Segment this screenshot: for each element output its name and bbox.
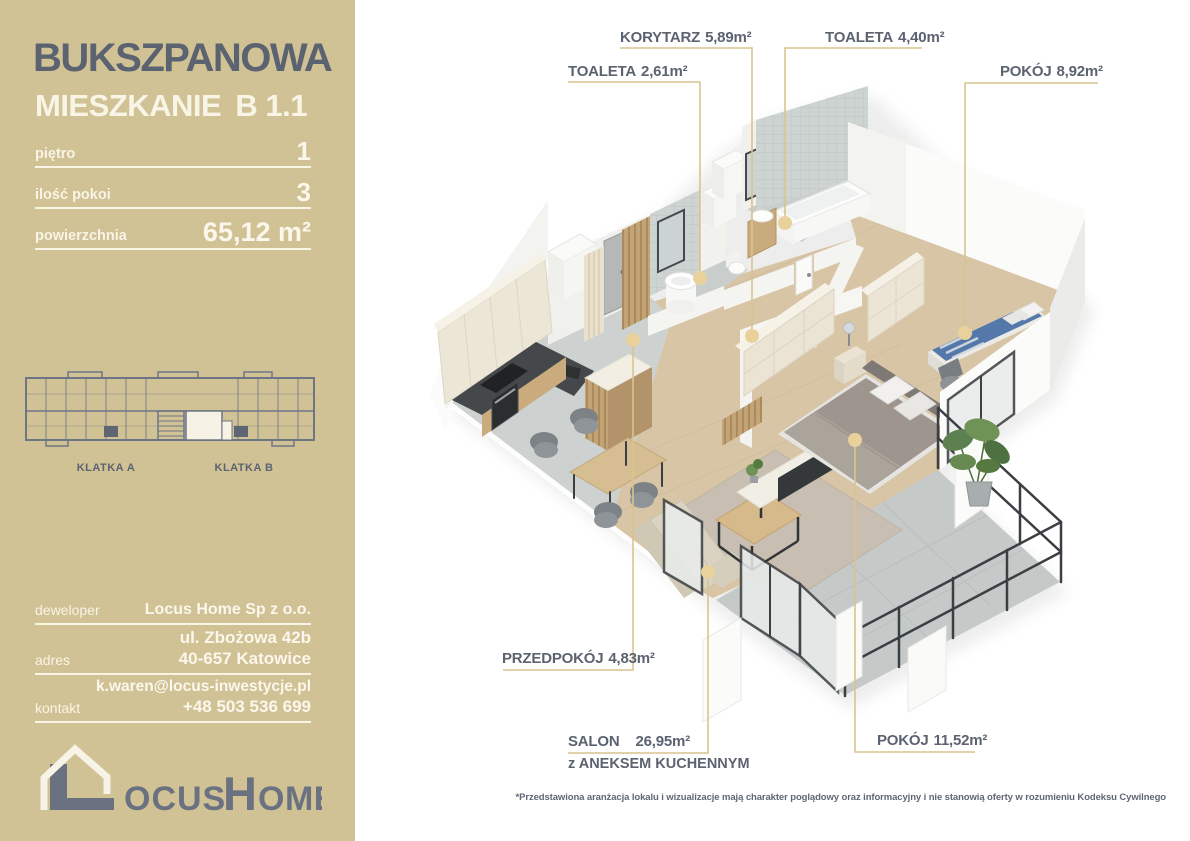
unit-number: B 1.1	[235, 88, 307, 124]
developer-row: deweloper Locus Home Sp z o.o.	[35, 598, 311, 625]
label-salon-sub: z ANEKSEM KUCHENNYM	[568, 756, 750, 772]
address-line1: ul. Zbożowa 42b	[179, 628, 311, 648]
brochure-page: BUKSZPANOWA MIESZKANIE B 1.1 piętro 1 il…	[0, 0, 1190, 841]
spec-value-area: 65,12 m²	[203, 219, 311, 248]
spec-row-floor: piętro 1	[35, 127, 311, 168]
contact-row: kontakt k.waren@locus-inwestycje.pl +48 …	[35, 678, 311, 723]
dark-unit-a	[104, 426, 118, 437]
spec-value-rooms: 3	[297, 179, 311, 207]
label-salon: SALON26,95m²	[568, 733, 690, 750]
project-title: BUKSZPANOWA	[33, 36, 331, 81]
company-logo: OCUS H OME	[30, 736, 322, 829]
spec-label-rooms: ilość pokoi	[35, 187, 111, 207]
spec-label-area: powierzchnia	[35, 228, 127, 248]
building-plan-svg	[20, 366, 320, 462]
spec-value-floor: 1	[297, 138, 311, 166]
label-przedpokoj: PRZEDPOKÓJ4,83m²	[502, 650, 655, 667]
label-korytarz: KORYTARZ5,89m²	[620, 29, 751, 46]
contact-label: kontakt	[35, 700, 80, 717]
logo-text-h: H	[223, 767, 257, 820]
logo-text-ocus: OCUS	[124, 780, 226, 818]
contact-email: k.waren@locus-inwestycje.pl	[96, 678, 311, 697]
unit-title: MIESZKANIE B 1.1	[35, 88, 307, 124]
sidebar: BUKSZPANOWA MIESZKANIE B 1.1 piętro 1 il…	[0, 0, 355, 841]
developer-label: deweloper	[35, 602, 100, 619]
spec-row-area: powierzchnia 65,12 m²	[35, 209, 311, 250]
label-toaleta-261: TOALETA2,61m²	[568, 63, 687, 80]
label-pokoj-1152: POKÓJ11,52m²	[877, 732, 987, 749]
building-plan-diagram	[20, 366, 320, 467]
contact-phone: +48 503 536 699	[96, 697, 311, 717]
unit-label: MIESZKANIE	[35, 88, 221, 124]
bath1-slat-panel	[622, 216, 650, 330]
contact-block: deweloper Locus Home Sp z o.o. adres ul.…	[35, 598, 311, 726]
bath1-mirror	[658, 210, 684, 272]
address-label: adres	[35, 652, 70, 669]
label-toaleta-440: TOALETA4,40m²	[825, 29, 944, 46]
spec-table: piętro 1 ilość pokoi 3 powierzchnia 65,1…	[35, 127, 311, 250]
contact-value: k.waren@locus-inwestycje.pl +48 503 536 …	[96, 678, 311, 717]
dark-unit-b	[234, 426, 248, 437]
label-pokoj-892: POKÓJ8,92m²	[1000, 63, 1103, 80]
address-row: adres ul. Zbożowa 42b 40-657 Katowice	[35, 628, 311, 675]
address-line2: 40-657 Katowice	[179, 649, 311, 669]
spec-label-floor: piętro	[35, 146, 75, 166]
highlighted-unit	[186, 411, 222, 440]
spec-row-rooms: ilość pokoi 3	[35, 168, 311, 209]
developer-value: Locus Home Sp z o.o.	[145, 600, 311, 619]
disclaimer-footnote: *Przedstawiona aranżacja lokalu i wizual…	[516, 792, 1166, 803]
logo-text-ome: OME	[258, 780, 322, 818]
address-value: ul. Zbożowa 42b 40-657 Katowice	[179, 628, 311, 669]
klatka-b-label: KLATKA B	[196, 462, 292, 474]
plan-area: TOALETA2,61m² KORYTARZ5,89m² TOALETA4,40…	[355, 0, 1190, 841]
klatka-a-label: KLATKA A	[58, 462, 154, 474]
floor-plan-3d	[355, 0, 1190, 841]
logo-svg: OCUS H OME	[30, 736, 322, 824]
